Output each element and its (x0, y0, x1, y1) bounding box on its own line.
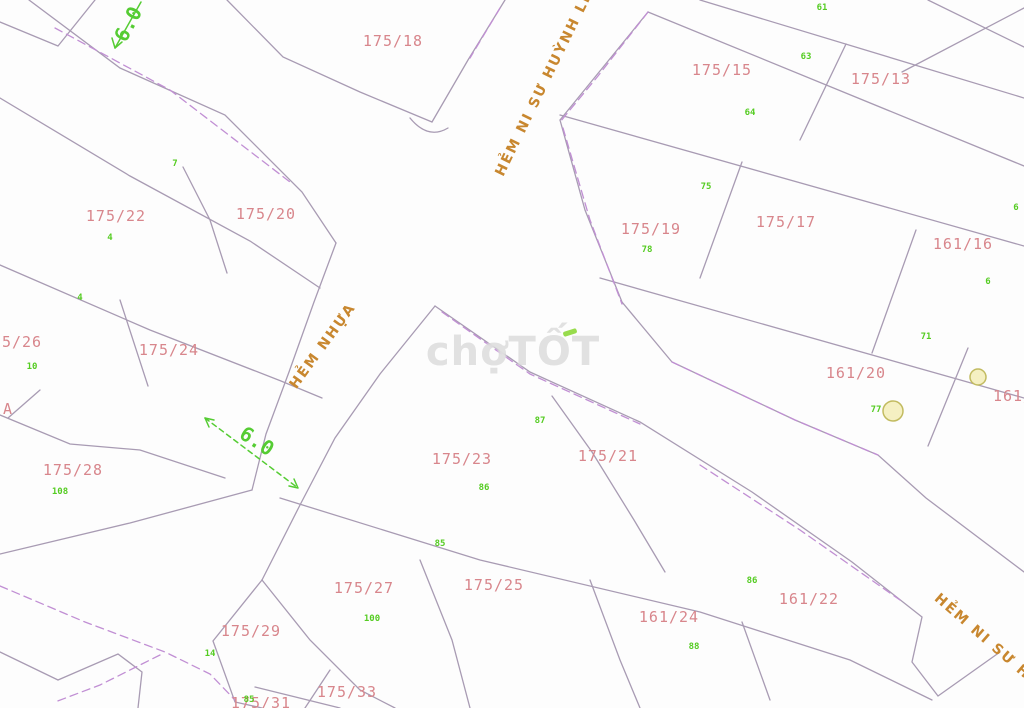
tree-markers (883, 369, 986, 421)
lot-number: 6 (985, 277, 990, 287)
parcel-label-175-28: 175/28 (43, 461, 103, 479)
parcel-label-175-23: 175/23 (432, 450, 492, 468)
parcel-label-175-22: 175/22 (86, 207, 146, 225)
parcel-label-175-25: 175/25 (464, 576, 524, 594)
parcel-label-175-13: 175/13 (851, 70, 911, 88)
parcel-label-A: A (3, 400, 13, 418)
parcel-boundaries-top-right (560, 0, 1024, 572)
lot-number: 85 (244, 695, 255, 705)
parcel-label-175-26: 175/26 (0, 333, 42, 351)
lot-number: 78 (642, 245, 653, 255)
parcel-label-161-24: 161/24 (639, 608, 699, 626)
lot-number: 86 (747, 576, 758, 586)
watermark-part-lower: chợ (426, 329, 509, 375)
lot-number: 4 (107, 233, 112, 243)
parcel-label-161-20: 161/20 (826, 364, 886, 382)
lot-number: 86 (479, 483, 490, 493)
parcel-label-175-17: 175/17 (756, 213, 816, 231)
lot-number: 100 (364, 614, 380, 624)
watermark-part-upper: TỐT (509, 329, 601, 375)
tree-marker (970, 369, 986, 385)
parcel-label-175-15: 175/15 (692, 61, 752, 79)
lot-number: 4 (77, 293, 82, 303)
tree-marker (883, 401, 903, 421)
parcel-boundaries-top-center (227, 0, 505, 132)
lot-number: 14 (205, 649, 216, 659)
dimension-lines (112, 2, 298, 488)
parcel-label-175-21: 175/21 (578, 447, 638, 465)
lot-number: 71 (921, 332, 932, 342)
lot-number: 87 (535, 416, 546, 426)
cadastral-map-canvas: chợTỐT 175/18175/15175/13175/22175/20175… (0, 0, 1024, 708)
lot-number: 75 (701, 182, 712, 192)
lot-number: 108 (52, 487, 68, 497)
parcel-label-175-18: 175/18 (363, 32, 423, 50)
lot-number: 6 (1013, 203, 1018, 213)
parcel-label-161-: 161/ (993, 387, 1024, 405)
lot-number: 64 (745, 108, 756, 118)
lot-number: 88 (689, 642, 700, 652)
lot-number: 61 (817, 3, 828, 13)
lot-number: 85 (435, 539, 446, 549)
parcel-label-175-29: 175/29 (221, 622, 281, 640)
parcel-label-175-33: 175/33 (317, 683, 377, 701)
parcel-label-161-16: 161/16 (933, 235, 993, 253)
parcel-label-175-19: 175/19 (621, 220, 681, 238)
cho-tot-watermark: chợTỐT (426, 329, 600, 375)
parcel-label-175-31: 175/31 (231, 694, 291, 708)
parcel-label-175-20: 175/20 (236, 205, 296, 223)
lot-number: 7 (172, 159, 177, 169)
parcel-label-161-22: 161/22 (779, 590, 839, 608)
lot-number: 77 (871, 405, 882, 415)
lot-number: 63 (801, 52, 812, 62)
parcel-label-175-27: 175/27 (334, 579, 394, 597)
parcel-label-175-24: 175/24 (139, 341, 199, 359)
lot-number: 10 (27, 362, 38, 372)
